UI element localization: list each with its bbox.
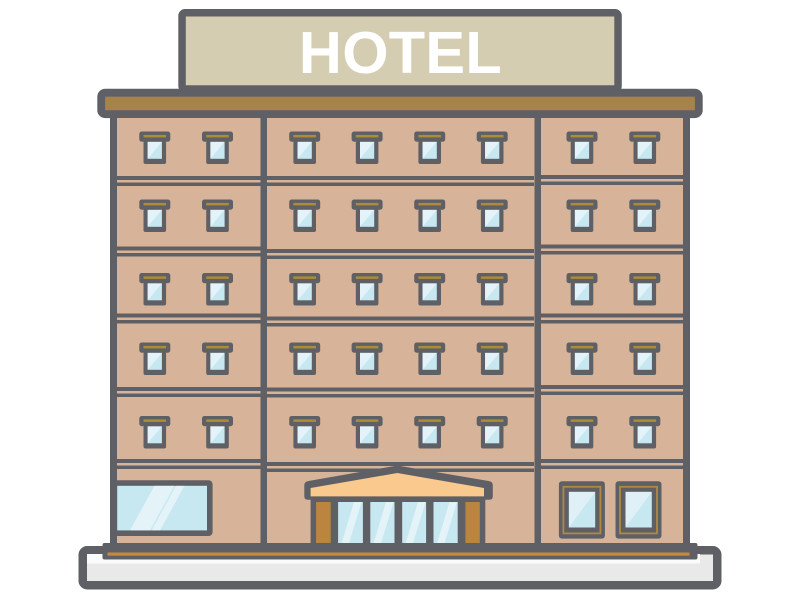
svg-text:HOTEL: HOTEL xyxy=(299,19,502,86)
